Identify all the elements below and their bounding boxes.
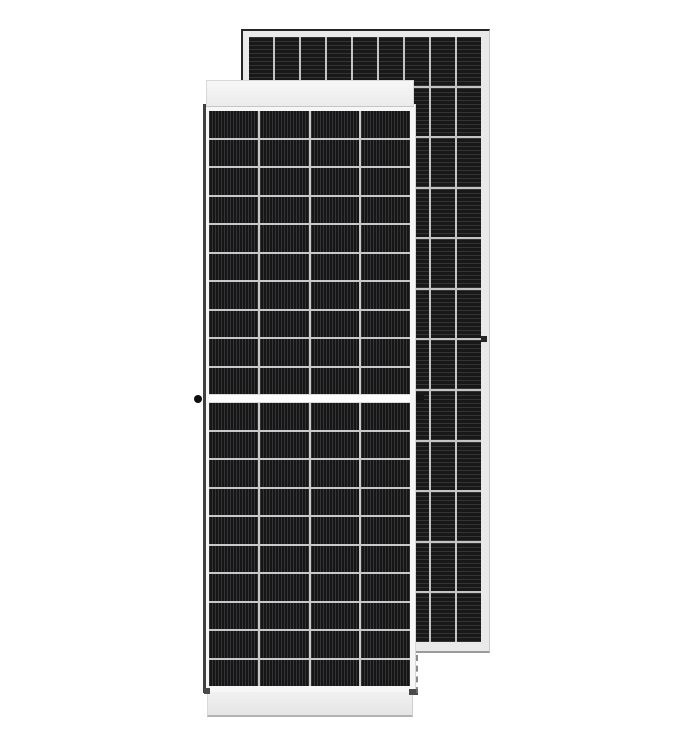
solar-cell <box>311 574 360 601</box>
solar-cell <box>311 631 360 658</box>
front-cell-grid-upper-half <box>209 111 410 394</box>
solar-cell <box>209 311 258 338</box>
solar-cell <box>260 517 309 544</box>
solar-cell <box>311 546 360 573</box>
solar-cell <box>260 574 309 601</box>
solar-cell <box>431 340 455 389</box>
front-frame-left-edge <box>203 104 206 693</box>
solar-cell <box>361 197 410 224</box>
solar-cell <box>361 282 410 309</box>
solar-cell <box>353 37 377 86</box>
solar-cell <box>311 254 360 281</box>
solar-cell <box>260 631 309 658</box>
solar-cell <box>311 603 360 630</box>
solar-cell <box>311 168 360 195</box>
solar-cell <box>431 290 455 339</box>
solar-cell <box>209 660 258 687</box>
solar-cell <box>260 603 309 630</box>
solar-cell <box>209 140 258 167</box>
solar-cell <box>260 225 309 252</box>
solar-cell <box>431 593 455 642</box>
solar-cell <box>431 37 455 86</box>
solar-panel-front <box>203 80 417 717</box>
solar-cell <box>311 368 360 395</box>
solar-cell <box>260 282 309 309</box>
solar-cell <box>260 460 309 487</box>
solar-cell <box>361 660 410 687</box>
solar-cell <box>361 432 410 459</box>
solar-cell <box>209 574 258 601</box>
solar-cell <box>209 254 258 281</box>
solar-cell <box>209 631 258 658</box>
product-image-solar-panels <box>0 0 684 748</box>
solar-cell <box>311 282 360 309</box>
solar-cell <box>361 168 410 195</box>
solar-cell <box>431 391 455 440</box>
solar-cell <box>361 517 410 544</box>
solar-cell <box>457 593 481 642</box>
solar-cell <box>311 489 360 516</box>
solar-cell <box>260 660 309 687</box>
solar-cell <box>431 239 455 288</box>
solar-cell <box>431 442 455 491</box>
solar-cell <box>311 140 360 167</box>
solar-cell <box>361 574 410 601</box>
solar-cell <box>361 603 410 630</box>
solar-cell <box>275 37 299 86</box>
solar-cell <box>327 37 351 86</box>
front-frame-right-edge-serration <box>416 655 418 693</box>
solar-cell <box>311 225 360 252</box>
solar-cell <box>311 660 360 687</box>
solar-cell <box>311 311 360 338</box>
solar-cell <box>457 340 481 389</box>
solar-cell <box>260 546 309 573</box>
solar-cell <box>311 197 360 224</box>
solar-cell <box>209 168 258 195</box>
solar-cell <box>260 339 309 366</box>
solar-cell <box>311 339 360 366</box>
solar-cell <box>361 460 410 487</box>
solar-cell <box>457 88 481 137</box>
solar-cell <box>209 225 258 252</box>
solar-cell <box>209 111 258 138</box>
solar-cell <box>457 189 481 238</box>
solar-cell <box>457 442 481 491</box>
solar-cell <box>209 197 258 224</box>
solar-cell <box>249 37 273 86</box>
solar-cell <box>361 403 410 430</box>
solar-cell <box>457 239 481 288</box>
solar-cell <box>260 140 309 167</box>
solar-cell <box>311 517 360 544</box>
solar-cell <box>361 111 410 138</box>
solar-cell <box>361 631 410 658</box>
solar-cell <box>457 543 481 592</box>
solar-cell <box>209 403 258 430</box>
solar-cell <box>361 339 410 366</box>
solar-cell <box>209 489 258 516</box>
solar-cell <box>209 546 258 573</box>
front-frame-top-band <box>206 80 414 107</box>
solar-cell <box>431 189 455 238</box>
solar-cell <box>260 254 309 281</box>
solar-cell <box>209 339 258 366</box>
solar-cell <box>431 88 455 137</box>
solar-cell <box>311 403 360 430</box>
solar-cell <box>457 138 481 187</box>
solar-cell <box>260 311 309 338</box>
solar-cell <box>361 254 410 281</box>
solar-cell <box>457 492 481 541</box>
solar-cell <box>431 492 455 541</box>
rear-frame-grounding-hole <box>481 336 487 342</box>
solar-cell <box>260 489 309 516</box>
solar-cell <box>260 168 309 195</box>
solar-cell <box>209 368 258 395</box>
solar-cell <box>260 368 309 395</box>
solar-cell <box>361 489 410 516</box>
front-center-busbar-gap <box>209 394 410 403</box>
front-cell-grid-lower-half <box>209 403 410 686</box>
solar-cell <box>361 311 410 338</box>
solar-cell <box>361 368 410 395</box>
solar-cell <box>209 460 258 487</box>
solar-cell <box>379 37 403 86</box>
solar-cell <box>311 432 360 459</box>
solar-cell <box>361 140 410 167</box>
front-cell-area <box>209 111 410 686</box>
front-frame-grounding-hole-left <box>194 395 202 403</box>
front-frame-grounding-hole-right <box>416 395 424 400</box>
solar-cell <box>457 290 481 339</box>
solar-cell <box>311 460 360 487</box>
solar-cell <box>361 546 410 573</box>
solar-cell <box>209 432 258 459</box>
solar-cell <box>311 111 360 138</box>
solar-cell <box>209 282 258 309</box>
front-frame-bottom-left-corner-bracket <box>204 688 210 694</box>
solar-cell <box>209 517 258 544</box>
solar-cell <box>260 111 309 138</box>
solar-cell <box>457 37 481 86</box>
solar-cell <box>431 543 455 592</box>
solar-cell <box>260 197 309 224</box>
solar-cell <box>260 432 309 459</box>
solar-cell <box>405 37 429 86</box>
solar-cell <box>361 225 410 252</box>
front-frame-bottom-band <box>207 692 413 717</box>
solar-cell <box>209 603 258 630</box>
solar-cell <box>431 138 455 187</box>
solar-cell <box>301 37 325 86</box>
solar-cell <box>260 403 309 430</box>
solar-cell <box>457 391 481 440</box>
